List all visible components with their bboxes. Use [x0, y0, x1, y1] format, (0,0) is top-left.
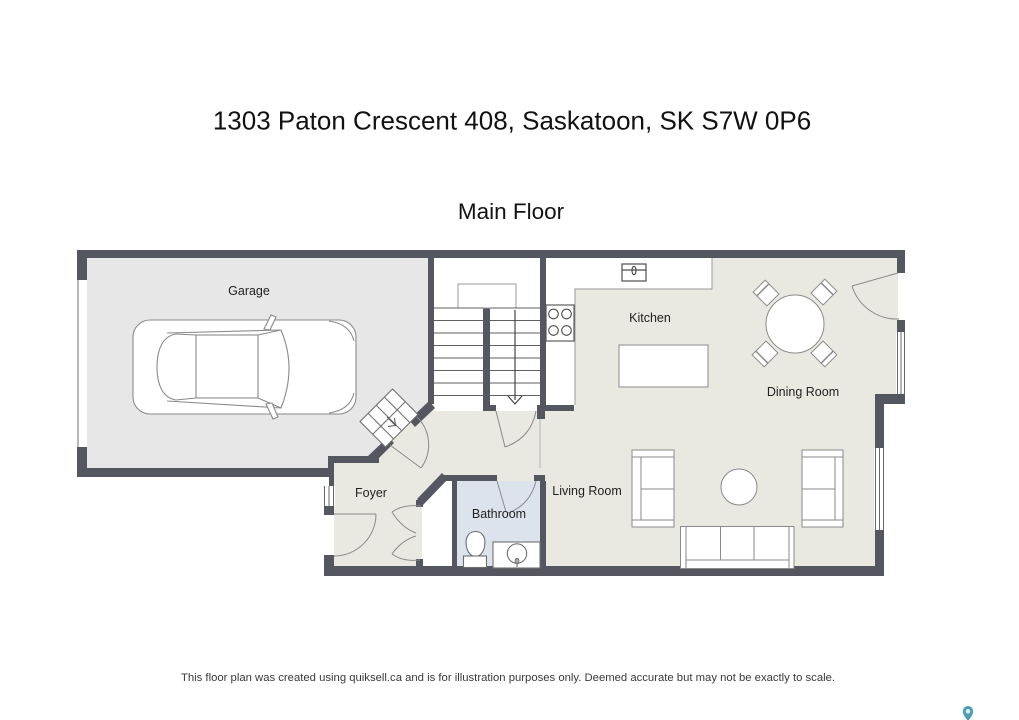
svg-text:This floor plan was created us: This floor plan was created using quikse…	[181, 672, 835, 684]
svg-text:Dining Room: Dining Room	[767, 385, 839, 399]
svg-text:1303 Paton Crescent 408, Saska: 1303 Paton Crescent 408, Saskatoon, SK S…	[213, 106, 811, 136]
svg-text:Garage: Garage	[228, 284, 270, 298]
svg-text:Living Room: Living Room	[552, 484, 621, 498]
svg-text:Foyer: Foyer	[355, 486, 387, 500]
svg-text:Main Floor: Main Floor	[458, 199, 565, 224]
svg-text:Bathroom: Bathroom	[472, 507, 526, 521]
svg-text:Kitchen: Kitchen	[629, 311, 671, 325]
